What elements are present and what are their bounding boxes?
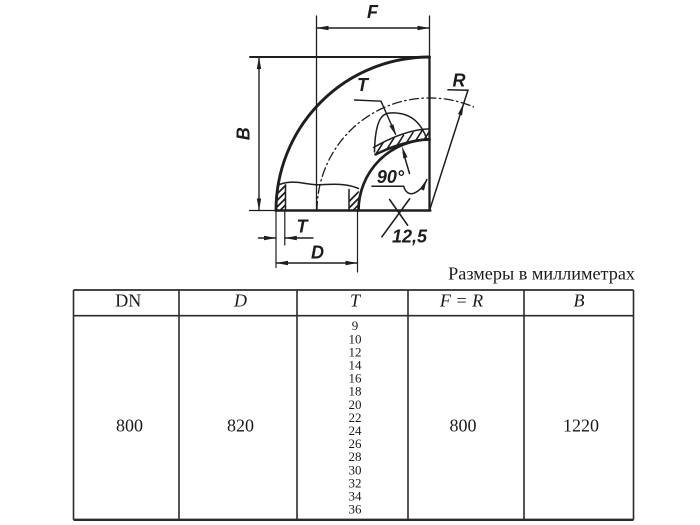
- svg-text:T: T: [357, 75, 370, 95]
- svg-text:1220: 1220: [563, 416, 599, 436]
- svg-text:36: 36: [349, 502, 363, 517]
- svg-text:Размеры в миллиметрах: Размеры в миллиметрах: [448, 264, 635, 284]
- svg-text:R: R: [453, 71, 466, 91]
- svg-text:800: 800: [116, 416, 143, 436]
- svg-text:T: T: [297, 217, 310, 237]
- svg-text:800: 800: [450, 416, 477, 436]
- svg-text:D: D: [233, 291, 247, 311]
- svg-text:B: B: [234, 127, 254, 140]
- svg-text:12,5: 12,5: [392, 227, 428, 247]
- svg-text:B: B: [574, 291, 585, 311]
- svg-text:T: T: [350, 291, 362, 311]
- svg-text:DN: DN: [115, 291, 141, 311]
- svg-text:D: D: [311, 243, 324, 263]
- svg-text:820: 820: [227, 416, 254, 436]
- svg-text:F: F: [367, 2, 379, 22]
- svg-text:90°: 90°: [377, 167, 405, 187]
- svg-text:F = R: F = R: [439, 291, 483, 311]
